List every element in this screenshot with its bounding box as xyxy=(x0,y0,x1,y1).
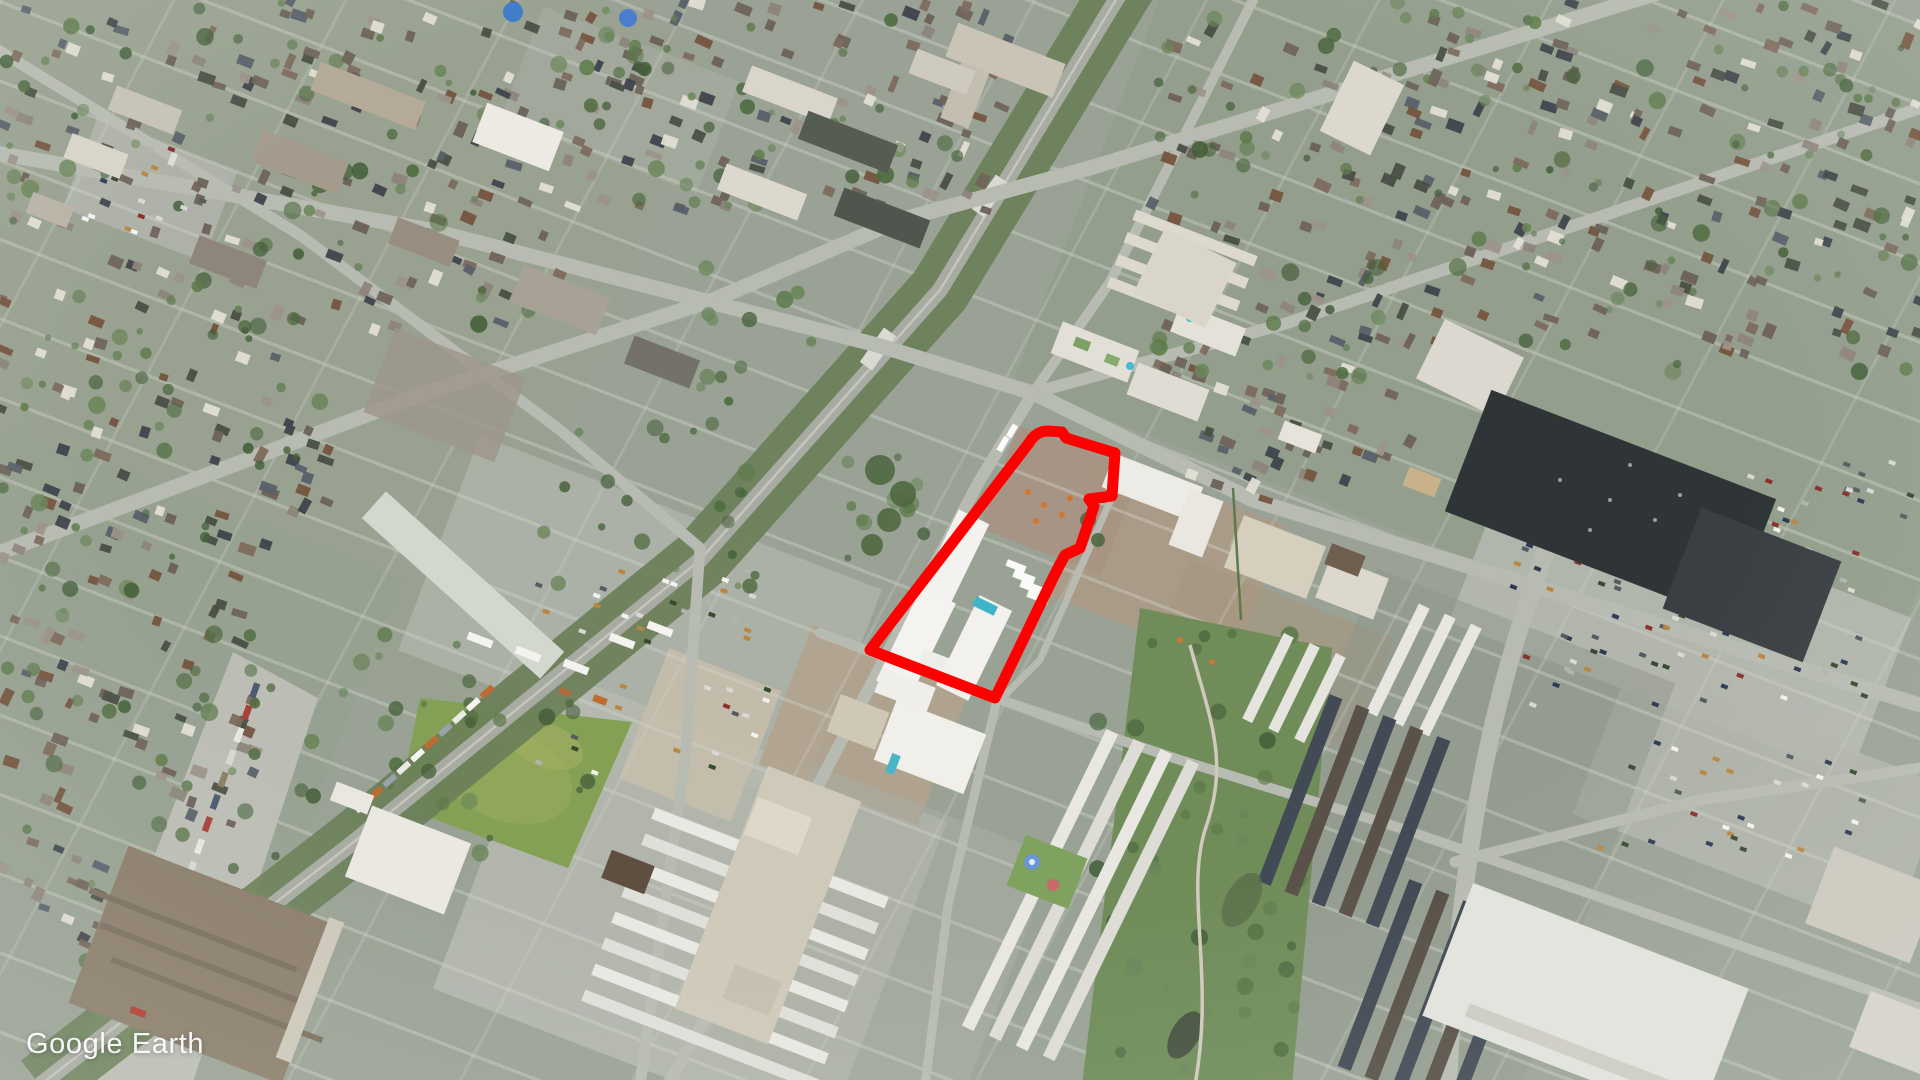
aerial-map-canvas[interactable] xyxy=(0,0,1920,1080)
google-earth-viewport[interactable]: Google Earth xyxy=(0,0,1920,1080)
haze-overlay xyxy=(0,0,1920,1080)
